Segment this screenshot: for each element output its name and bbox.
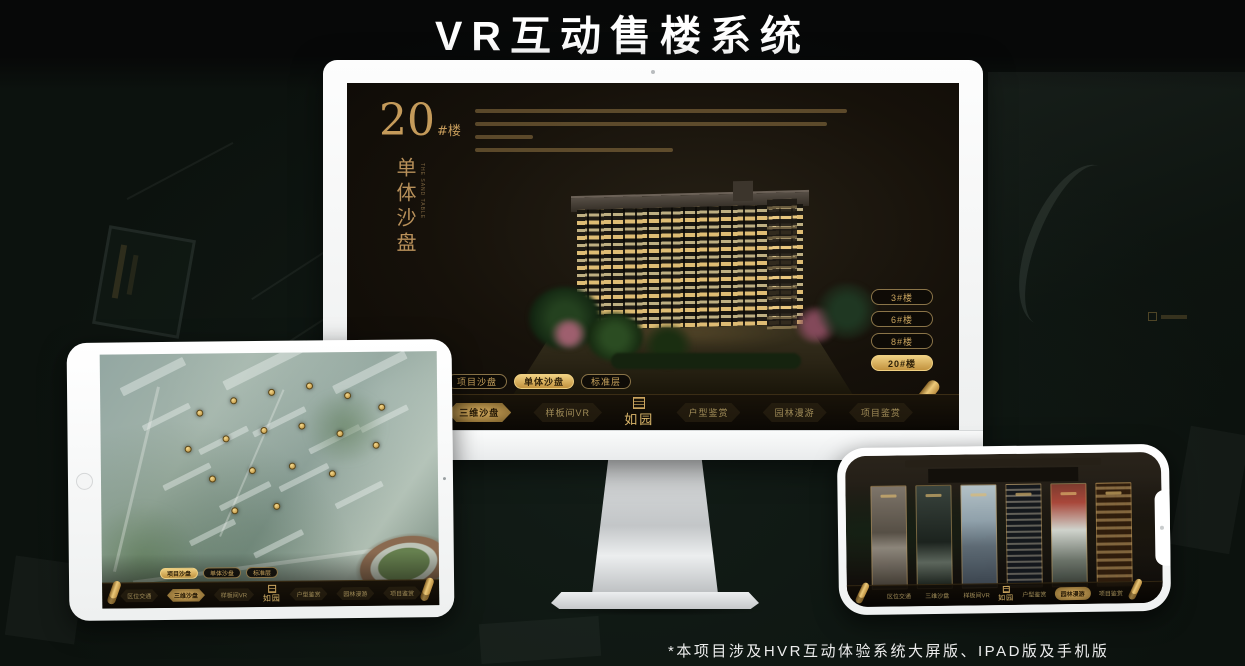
building-marker[interactable] bbox=[344, 392, 351, 399]
ipad-tab-project-sandtable[interactable]: 项目沙盘 bbox=[160, 568, 198, 579]
ipad-home-button[interactable] bbox=[76, 473, 93, 490]
phone-panel-interior[interactable] bbox=[870, 485, 907, 589]
ipad-nav-floorplan[interactable]: 户型鉴赏 bbox=[290, 587, 328, 600]
building-marker[interactable] bbox=[306, 382, 313, 389]
building-3d-model[interactable] bbox=[495, 169, 870, 399]
description-paragraph bbox=[475, 109, 847, 161]
building-number-suffix: #楼 bbox=[437, 124, 461, 139]
tree bbox=[817, 283, 877, 339]
phone-nav-showroom-vr[interactable]: 样板间VR bbox=[957, 588, 996, 602]
building-marker[interactable] bbox=[268, 389, 275, 396]
panel-caption-mark bbox=[970, 493, 986, 496]
monitor-stand-base bbox=[551, 592, 759, 609]
phone-front-camera-dot bbox=[1160, 525, 1164, 529]
ipad-bottom-navbar: 区位交通 三维沙盘 样板间VR 如园 户型鉴赏 园林漫游 项目鉴赏 bbox=[102, 579, 439, 609]
building-marker[interactable] bbox=[289, 463, 296, 470]
hedge bbox=[611, 353, 801, 369]
aerial-building bbox=[162, 462, 211, 491]
phone-panel-gallery bbox=[870, 482, 1132, 590]
building-marker[interactable] bbox=[230, 397, 237, 404]
aerial-building bbox=[252, 406, 307, 437]
ipad-subtab-group: 项目沙盘 单体沙盘 标准层 bbox=[160, 567, 278, 579]
building-marker[interactable] bbox=[196, 410, 203, 417]
background-signboard bbox=[92, 225, 196, 339]
phone-nav-project-view[interactable]: 项目鉴赏 bbox=[1093, 586, 1129, 600]
footnote-text: *本项目涉及HVR互动体验系统大屏版、IPAD版及手机版 bbox=[668, 640, 1109, 661]
phone: 区位交通 三维沙盘 样板间VR 如园 户型鉴赏 园林漫游 项目鉴赏 bbox=[837, 444, 1171, 616]
panel-caption-mark bbox=[1060, 492, 1076, 495]
building-marker[interactable] bbox=[373, 442, 380, 449]
building-marker[interactable] bbox=[298, 423, 305, 430]
phone-nav-location-traffic[interactable]: 区位交通 bbox=[881, 589, 917, 603]
nav-item-showroom-vr[interactable]: 样板间VR bbox=[533, 403, 602, 422]
panel-caption-mark bbox=[881, 494, 897, 497]
ipad-tab-single-sandtable[interactable]: 单体沙盘 bbox=[203, 567, 241, 578]
ipad-nav-project-view[interactable]: 项目鉴赏 bbox=[383, 586, 421, 599]
nav-item-3d-sandtable[interactable]: 三维沙盘 bbox=[447, 403, 511, 422]
tab-project-sandtable[interactable]: 项目沙盘 bbox=[447, 374, 507, 389]
stage: VR互动售楼系统 20#楼 单体沙盘 THE SAND TABLE bbox=[0, 0, 1245, 666]
phone-panel-tower[interactable] bbox=[1005, 483, 1042, 587]
floor-button-8[interactable]: 8#楼 bbox=[871, 333, 933, 349]
tab-single-sandtable[interactable]: 单体沙盘 bbox=[514, 374, 574, 389]
ipad-tab-standard-floor[interactable]: 标准层 bbox=[246, 567, 278, 578]
background-block bbox=[1170, 426, 1245, 555]
floor-button-20-active[interactable]: 20#楼 bbox=[871, 355, 933, 371]
building-marker[interactable] bbox=[329, 470, 336, 477]
phone-panel-gate[interactable] bbox=[1050, 483, 1087, 587]
phone-roof-eave bbox=[905, 458, 1101, 468]
phone-brand-logo: 如园 bbox=[998, 586, 1014, 603]
brand-logo-text: 如园 bbox=[624, 409, 654, 428]
building-marker[interactable] bbox=[273, 503, 280, 510]
ipad-nav-showroom-vr[interactable]: 样板间VR bbox=[214, 588, 254, 601]
nav-item-garden-roam[interactable]: 园林漫游 bbox=[763, 403, 827, 422]
panel-caption-mark bbox=[1015, 493, 1031, 496]
building-marker[interactable] bbox=[336, 430, 343, 437]
phone-roof-body bbox=[928, 467, 1078, 483]
building-marker[interactable] bbox=[249, 467, 256, 474]
nav-item-floorplan[interactable]: 户型鉴赏 bbox=[676, 403, 740, 422]
floor-button-group: 3#楼 6#楼 8#楼 20#楼 bbox=[871, 289, 933, 371]
building-marker[interactable] bbox=[378, 404, 385, 411]
building-stair-tower bbox=[733, 181, 753, 202]
description-line bbox=[475, 148, 673, 152]
subtab-group: 项目沙盘 单体沙盘 标准层 bbox=[447, 374, 631, 389]
phone-panel-shelf[interactable] bbox=[1095, 482, 1132, 586]
phone-panel-building[interactable] bbox=[960, 484, 997, 588]
aerial-building bbox=[120, 357, 187, 396]
background-road-line bbox=[127, 142, 234, 200]
ipad: 项目沙盘 单体沙盘 标准层 区位交通 三维沙盘 样板间VR 如园 户型鉴赏 园林… bbox=[67, 339, 455, 621]
building-number: 20 bbox=[379, 95, 435, 146]
ipad-nav-garden-roam[interactable]: 园林漫游 bbox=[336, 587, 374, 600]
brand-logo: 如园 bbox=[624, 397, 654, 428]
phone-nav-3d-sandtable[interactable]: 三维沙盘 bbox=[919, 589, 955, 603]
aerial-building bbox=[222, 351, 307, 390]
panel-caption-mark bbox=[1105, 491, 1121, 494]
building-marker[interactable] bbox=[231, 507, 238, 514]
ipad-nav-location-traffic[interactable]: 区位交通 bbox=[120, 589, 158, 602]
brand-seal-icon bbox=[633, 397, 645, 409]
description-line bbox=[475, 122, 827, 126]
phone-panel-garden[interactable] bbox=[915, 485, 952, 589]
ipad-brand-logo: 如园 bbox=[263, 585, 281, 604]
ipad-brand-seal-icon bbox=[268, 585, 276, 593]
building-marker[interactable] bbox=[185, 446, 192, 453]
aerial-building bbox=[219, 481, 272, 511]
section-title-english: THE SAND TABLE bbox=[419, 163, 425, 219]
building-marker[interactable] bbox=[209, 475, 216, 482]
aerial-road bbox=[219, 389, 284, 537]
monitor-camera-dot bbox=[651, 70, 655, 74]
background-block bbox=[479, 616, 601, 664]
nav-item-project-view[interactable]: 项目鉴赏 bbox=[849, 403, 913, 422]
phone-notch bbox=[1154, 489, 1170, 565]
section-title-vertical: 单体沙盘 bbox=[391, 157, 420, 257]
ipad-nav-3d-sandtable[interactable]: 三维沙盘 bbox=[167, 589, 205, 602]
phone-nav-garden-roam[interactable]: 园林漫游 bbox=[1054, 587, 1090, 601]
floor-button-3[interactable]: 3#楼 bbox=[871, 289, 933, 305]
monitor-stand-neck bbox=[592, 458, 718, 594]
description-line bbox=[475, 135, 533, 139]
aerial-building bbox=[278, 463, 329, 493]
ipad-camera-dot bbox=[443, 477, 446, 480]
tab-standard-floor[interactable]: 标准层 bbox=[581, 374, 631, 389]
blossom-tree bbox=[551, 319, 587, 349]
phone-nav-floorplan[interactable]: 户型鉴赏 bbox=[1016, 587, 1052, 601]
phone-brand-logo-text: 如园 bbox=[998, 593, 1014, 603]
aerial-building bbox=[332, 351, 408, 394]
aerial-building bbox=[335, 481, 384, 510]
phone-bottom-navbar: 区位交通 三维沙盘 样板间VR 如园 户型鉴赏 园林漫游 项目鉴赏 bbox=[847, 581, 1163, 607]
background-gold-logo bbox=[1148, 312, 1157, 321]
description-line bbox=[475, 109, 847, 113]
panel-caption-mark bbox=[925, 494, 941, 497]
building-number-heading: 20#楼 bbox=[379, 99, 461, 143]
building-marker[interactable] bbox=[223, 435, 230, 442]
ipad-brand-logo-text: 如园 bbox=[263, 593, 281, 604]
building-side-core bbox=[767, 199, 797, 330]
page-title: VR互动售楼系统 bbox=[0, 2, 1245, 62]
building-marker[interactable] bbox=[260, 427, 267, 434]
ipad-screen-aerial-view[interactable]: 项目沙盘 单体沙盘 标准层 区位交通 三维沙盘 样板间VR 如园 户型鉴赏 园林… bbox=[100, 351, 440, 609]
floor-button-6[interactable]: 6#楼 bbox=[871, 311, 933, 327]
phone-screen[interactable]: 区位交通 三维沙盘 样板间VR 如园 户型鉴赏 园林漫游 项目鉴赏 bbox=[845, 452, 1163, 607]
aerial-greenery bbox=[300, 392, 391, 463]
